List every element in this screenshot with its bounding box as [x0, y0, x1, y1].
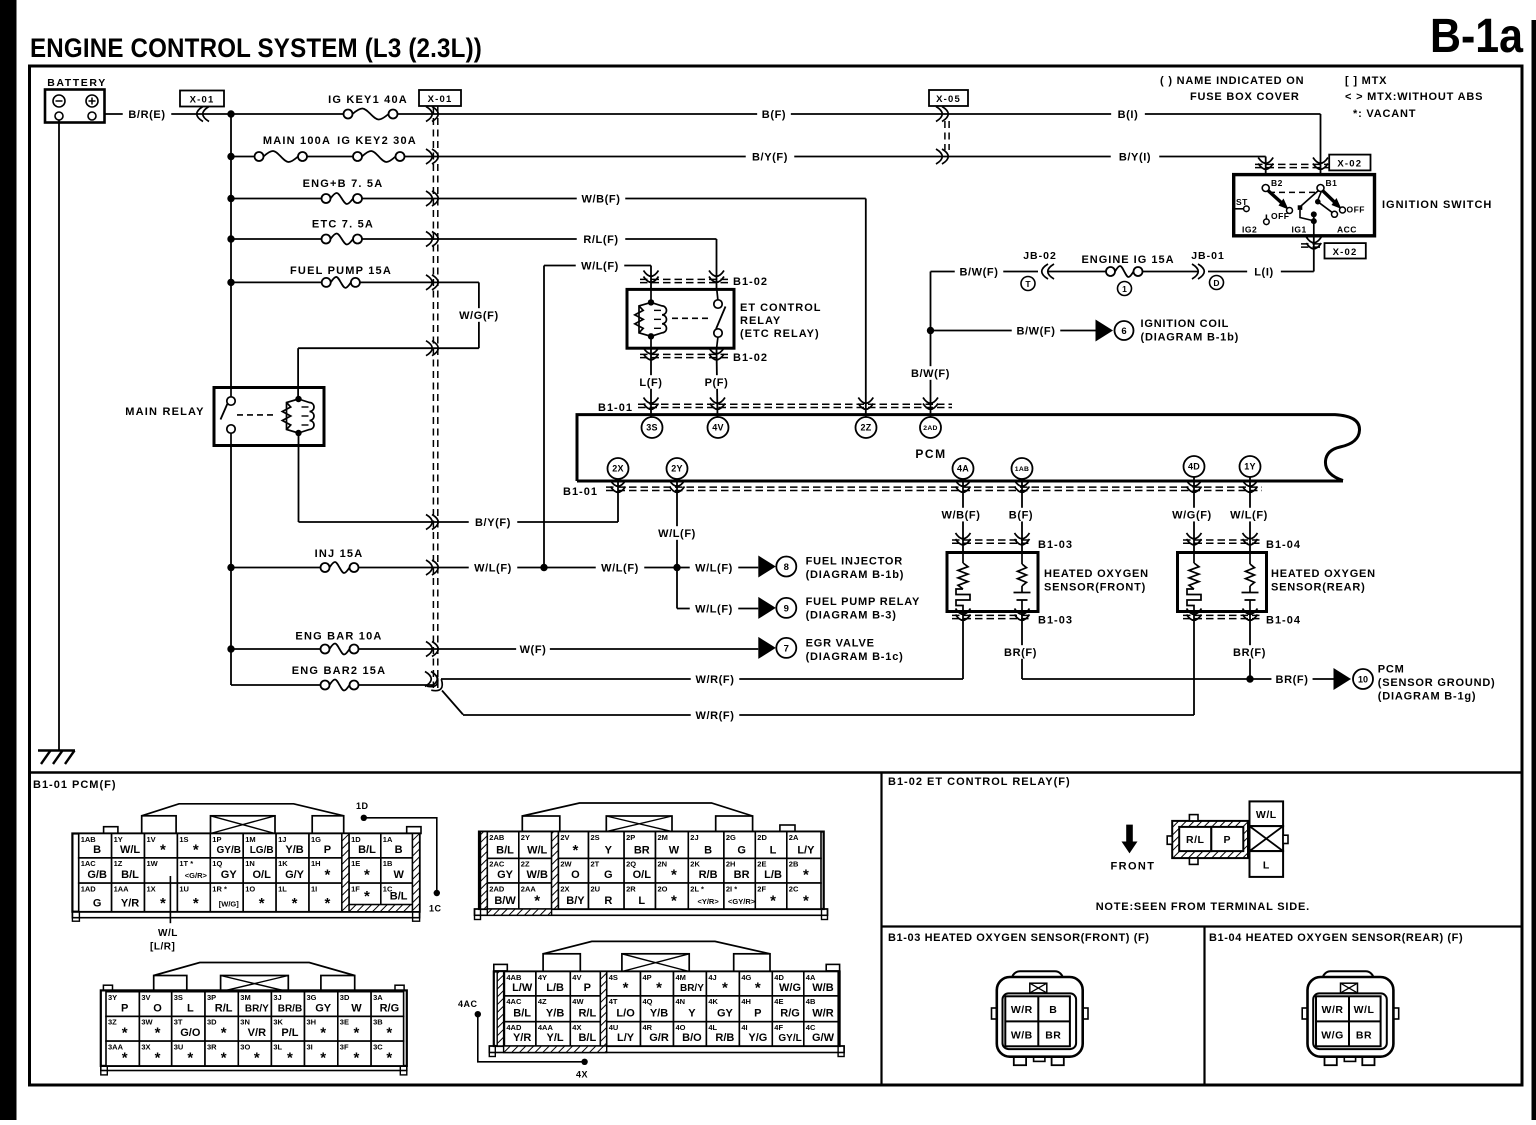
svg-text:W/R: W/R	[1322, 1004, 1344, 1016]
svg-text:IG2: IG2	[1242, 225, 1257, 235]
svg-text:1A: 1A	[383, 835, 393, 844]
svg-text:W/L(F): W/L(F)	[474, 562, 512, 574]
svg-text:3M: 3M	[240, 993, 250, 1002]
svg-text:B: B	[704, 844, 712, 856]
svg-text:4Z: 4Z	[538, 997, 547, 1006]
svg-text:4AC: 4AC	[458, 999, 478, 1009]
svg-text:4V: 4V	[572, 973, 581, 982]
svg-text:L: L	[187, 1002, 194, 1014]
svg-text:2F: 2F	[757, 884, 766, 893]
svg-text:X-02: X-02	[1333, 247, 1358, 258]
svg-text:W/B(F): W/B(F)	[941, 510, 980, 522]
svg-text:R/B: R/B	[699, 869, 718, 881]
svg-text:3D: 3D	[207, 1018, 217, 1027]
svg-text:B/W(F): B/W(F)	[1016, 325, 1055, 337]
svg-text:*: *	[221, 1049, 227, 1066]
svg-text:W/R: W/R	[812, 1008, 833, 1020]
svg-text:X-02: X-02	[1337, 159, 1362, 170]
svg-text:B/O: B/O	[682, 1032, 702, 1044]
svg-text:IG KEY2 30A: IG KEY2 30A	[337, 135, 417, 147]
svg-text:*: *	[160, 895, 166, 912]
svg-text:BR(F): BR(F)	[1004, 647, 1037, 659]
svg-text:2Q: 2Q	[626, 860, 636, 869]
svg-text:1H: 1H	[311, 859, 321, 868]
svg-text:X-01: X-01	[190, 95, 215, 106]
svg-text:PCM: PCM	[915, 447, 946, 461]
svg-text:Y/L: Y/L	[547, 1032, 564, 1044]
svg-text:W: W	[351, 1002, 362, 1014]
svg-text:W/R: W/R	[1011, 1004, 1033, 1016]
svg-text:1AC: 1AC	[81, 859, 97, 868]
svg-text:( ) NAME INDICATED ON: ( ) NAME INDICATED ON	[1160, 75, 1304, 87]
svg-text:V/R: V/R	[248, 1027, 266, 1039]
svg-text:2P: 2P	[626, 833, 635, 842]
svg-text:SENSOR(FRONT): SENSOR(FRONT)	[1044, 582, 1146, 594]
svg-text:2X: 2X	[560, 884, 569, 893]
svg-text:2K: 2K	[690, 860, 700, 869]
svg-text:P: P	[584, 982, 591, 994]
svg-text:B1-01 PCM(F): B1-01 PCM(F)	[33, 779, 117, 791]
svg-text:1D: 1D	[351, 835, 361, 844]
svg-text:*: *	[386, 1049, 392, 1066]
svg-text:B/L: B/L	[496, 844, 514, 856]
svg-text:3K: 3K	[273, 1018, 283, 1027]
svg-text:*: VACANT: *: VACANT	[1353, 108, 1416, 120]
svg-text:3S: 3S	[646, 423, 658, 433]
svg-text:X-01: X-01	[428, 94, 453, 105]
svg-text:4K: 4K	[708, 997, 718, 1006]
svg-text:1E: 1E	[351, 859, 360, 868]
svg-text:2I *: 2I *	[726, 884, 737, 893]
svg-text:GY: GY	[717, 1008, 734, 1020]
svg-text:L/Y: L/Y	[617, 1032, 635, 1044]
svg-text:4X: 4X	[572, 1023, 581, 1032]
svg-text:JB-02: JB-02	[1023, 250, 1057, 262]
svg-text:R/G: R/G	[380, 1002, 400, 1014]
svg-text:X-05: X-05	[936, 94, 961, 105]
svg-text:2J: 2J	[690, 833, 698, 842]
svg-text:2Z: 2Z	[521, 860, 530, 869]
svg-text:G/B: G/B	[87, 869, 107, 881]
svg-text:BR(F): BR(F)	[1276, 674, 1309, 686]
svg-text:W/G(F): W/G(F)	[459, 310, 499, 322]
svg-text:2V: 2V	[560, 833, 569, 842]
svg-text:L/Y: L/Y	[797, 844, 815, 856]
svg-text:L/W: L/W	[512, 982, 533, 994]
svg-text:B2: B2	[1271, 178, 1283, 188]
svg-text:<Y/R>: <Y/R>	[697, 897, 719, 906]
svg-text:BR(F): BR(F)	[1233, 647, 1266, 659]
svg-text:W/L: W/L	[1256, 809, 1277, 821]
svg-text:PCM: PCM	[1378, 664, 1405, 676]
svg-text:2G: 2G	[726, 833, 736, 842]
svg-text:4F: 4F	[774, 1023, 783, 1032]
svg-text:1D: 1D	[356, 801, 369, 811]
svg-text:2O: 2O	[658, 884, 668, 893]
svg-text:HEATED OXYGEN: HEATED OXYGEN	[1044, 568, 1149, 580]
svg-text:BR/Y: BR/Y	[680, 983, 704, 994]
svg-text:2N: 2N	[658, 860, 668, 869]
svg-text:BR: BR	[734, 869, 750, 881]
svg-text:3C: 3C	[373, 1042, 383, 1051]
svg-text:*: *	[287, 1049, 293, 1066]
svg-text:*: *	[671, 867, 677, 884]
svg-text:B1-04: B1-04	[1266, 615, 1301, 627]
svg-text:B: B	[93, 844, 101, 856]
svg-text:W/G: W/G	[1321, 1029, 1344, 1041]
svg-text:W/B: W/B	[527, 869, 548, 881]
svg-text:BR: BR	[1356, 1029, 1372, 1041]
svg-text:O/L: O/L	[252, 869, 271, 881]
svg-text:[L/R]: [L/R]	[150, 942, 175, 953]
svg-text:*: *	[386, 1025, 392, 1042]
svg-text:*: *	[354, 1025, 360, 1042]
svg-text:(DIAGRAM B-1g): (DIAGRAM B-1g)	[1378, 691, 1477, 703]
svg-text:1U: 1U	[179, 884, 189, 893]
svg-text:*: *	[160, 841, 166, 858]
svg-text:1F: 1F	[351, 884, 360, 893]
svg-text:W/B: W/B	[812, 982, 833, 994]
svg-text:B/W: B/W	[494, 895, 516, 907]
svg-text:B/Y: B/Y	[566, 895, 585, 907]
svg-text:ENG BAR 10A: ENG BAR 10A	[295, 631, 382, 643]
svg-text:<G/R>: <G/R>	[185, 871, 208, 880]
svg-text:GY: GY	[497, 869, 514, 881]
svg-text:O: O	[153, 1002, 162, 1014]
svg-text:R/G: R/G	[780, 1008, 800, 1020]
svg-text:*: *	[364, 888, 370, 905]
svg-text:B/L: B/L	[358, 844, 376, 856]
svg-text:4X: 4X	[576, 1070, 588, 1080]
svg-text:G/W: G/W	[812, 1032, 835, 1044]
svg-text:4C: 4C	[806, 1023, 816, 1032]
svg-text:BATTERY: BATTERY	[47, 77, 107, 89]
svg-text:1AB: 1AB	[81, 835, 97, 844]
svg-text:BR: BR	[1045, 1029, 1061, 1041]
svg-text:Y/G: Y/G	[748, 1032, 767, 1044]
svg-text:1Z: 1Z	[114, 859, 123, 868]
svg-text:B/Y(I): B/Y(I)	[1119, 151, 1151, 163]
svg-text:ST: ST	[1236, 197, 1248, 207]
svg-text:1R *: 1R *	[212, 884, 227, 893]
svg-text:*: *	[320, 1025, 326, 1042]
svg-text:*: *	[671, 893, 677, 910]
svg-text:(SENSOR GROUND): (SENSOR GROUND)	[1378, 677, 1496, 689]
svg-text:LG/B: LG/B	[250, 845, 274, 856]
svg-text:W/L: W/L	[527, 844, 547, 856]
svg-text:7: 7	[784, 643, 789, 654]
svg-text:4T: 4T	[609, 997, 618, 1006]
svg-text:IGNITION COIL: IGNITION COIL	[1141, 318, 1230, 330]
svg-text:4AA: 4AA	[538, 1023, 554, 1032]
svg-text:W/L(F): W/L(F)	[1230, 510, 1268, 522]
svg-text:B/L: B/L	[513, 1008, 531, 1020]
svg-text:1X: 1X	[147, 884, 156, 893]
svg-text:1T *: 1T *	[179, 859, 193, 868]
svg-text:2R: 2R	[626, 884, 636, 893]
svg-text:P/L: P/L	[281, 1027, 298, 1039]
svg-text:*: *	[325, 895, 331, 912]
svg-text:*: *	[221, 1025, 227, 1042]
svg-text:3L: 3L	[273, 1042, 282, 1051]
svg-text:4H: 4H	[741, 997, 751, 1006]
svg-text:1AD: 1AD	[81, 884, 97, 893]
svg-text:3E: 3E	[340, 1018, 349, 1027]
svg-text:1M: 1M	[245, 835, 255, 844]
svg-text:B/Y(F): B/Y(F)	[475, 517, 511, 529]
svg-text:W/G(F): W/G(F)	[1172, 510, 1212, 522]
svg-text:*: *	[354, 1049, 360, 1066]
svg-text:2E: 2E	[757, 860, 766, 869]
svg-text:W/L(F): W/L(F)	[601, 562, 639, 574]
svg-text:*: *	[722, 979, 728, 996]
svg-text:*: *	[122, 1049, 128, 1066]
svg-text:2C: 2C	[789, 884, 799, 893]
svg-text:8: 8	[784, 562, 789, 573]
svg-text:2AD: 2AD	[489, 884, 505, 893]
svg-text:OFF: OFF	[1347, 205, 1366, 215]
svg-text:4Q: 4Q	[643, 997, 653, 1006]
svg-text:4W: 4W	[572, 997, 584, 1006]
svg-text:G: G	[604, 869, 613, 881]
svg-text:3H: 3H	[307, 1018, 317, 1027]
svg-text:W/L: W/L	[1354, 1004, 1375, 1016]
svg-text:4D: 4D	[774, 973, 784, 982]
svg-text:SENSOR(REAR): SENSOR(REAR)	[1271, 582, 1366, 594]
svg-text:B1-03: B1-03	[1038, 539, 1073, 551]
svg-text:1L: 1L	[278, 884, 287, 893]
svg-text:4M: 4M	[676, 973, 686, 982]
svg-text:4R: 4R	[643, 1023, 653, 1032]
svg-text:*: *	[364, 867, 370, 884]
svg-text:*: *	[193, 841, 199, 858]
svg-text:W/L(F): W/L(F)	[695, 562, 733, 574]
svg-text:*: *	[755, 979, 761, 996]
svg-text:(ETC RELAY): (ETC RELAY)	[740, 328, 820, 340]
svg-text:2Y: 2Y	[521, 833, 530, 842]
svg-text:IGNITION SWITCH: IGNITION SWITCH	[1382, 199, 1492, 211]
svg-text:3Y: 3Y	[108, 993, 117, 1002]
svg-text:*: *	[573, 842, 579, 859]
svg-text:G: G	[93, 898, 102, 910]
svg-text:3F: 3F	[340, 1042, 349, 1051]
svg-text:B(I): B(I)	[1118, 109, 1139, 121]
svg-text:P(F): P(F)	[705, 377, 729, 389]
svg-text:3R: 3R	[207, 1042, 217, 1051]
svg-text:B1-03 HEATED OXYGEN SENSOR(FRO: B1-03 HEATED OXYGEN SENSOR(FRONT) (F)	[888, 932, 1150, 944]
svg-text:G: G	[737, 844, 746, 856]
svg-text:(DIAGRAM B-1b): (DIAGRAM B-1b)	[806, 569, 905, 581]
svg-text:Y/R: Y/R	[513, 1032, 531, 1044]
svg-text:B1-03: B1-03	[1038, 615, 1073, 627]
svg-text:*: *	[292, 895, 298, 912]
svg-text:MAIN RELAY: MAIN RELAY	[125, 406, 204, 418]
svg-text:1B: 1B	[383, 859, 393, 868]
svg-text:4I: 4I	[741, 1023, 747, 1032]
svg-text:B1-02 ET CONTROL RELAY(F): B1-02 ET CONTROL RELAY(F)	[888, 776, 1071, 788]
svg-text:4O: 4O	[676, 1023, 686, 1032]
svg-text:3N: 3N	[240, 1018, 250, 1027]
svg-text:B(F): B(F)	[1009, 510, 1033, 522]
svg-text:4B: 4B	[806, 997, 816, 1006]
svg-text:3V: 3V	[141, 993, 150, 1002]
svg-text:G/Y: G/Y	[285, 869, 305, 881]
svg-text:4E: 4E	[774, 997, 783, 1006]
svg-text:Y: Y	[605, 844, 613, 856]
svg-text:Y/R: Y/R	[121, 898, 139, 910]
svg-text:R/B: R/B	[715, 1032, 734, 1044]
svg-text:*: *	[320, 1049, 326, 1066]
svg-text:1Q: 1Q	[212, 859, 222, 868]
svg-text:OFF: OFF	[1271, 211, 1290, 221]
svg-text:B1-04: B1-04	[1266, 539, 1301, 551]
svg-text:T: T	[1025, 279, 1031, 289]
svg-text:*: *	[193, 895, 199, 912]
svg-text:4Y: 4Y	[538, 973, 547, 982]
svg-text:W/R(F): W/R(F)	[695, 674, 734, 686]
svg-text:2Z: 2Z	[860, 423, 871, 433]
svg-text:L(I): L(I)	[1254, 266, 1274, 278]
svg-text:1P: 1P	[212, 835, 221, 844]
svg-text:*: *	[623, 979, 629, 996]
svg-text:L: L	[638, 895, 645, 907]
svg-text:2T: 2T	[591, 860, 600, 869]
svg-text:R/L: R/L	[578, 1008, 596, 1020]
svg-text:1Y: 1Y	[1244, 462, 1256, 472]
svg-text:FUEL PUMP 15A: FUEL PUMP 15A	[290, 265, 392, 277]
svg-text:2AC: 2AC	[489, 860, 505, 869]
svg-text:*: *	[187, 1049, 193, 1066]
svg-text:O/L: O/L	[633, 869, 652, 881]
svg-text:ET CONTROL: ET CONTROL	[740, 302, 822, 314]
svg-text:W/L(F): W/L(F)	[658, 528, 696, 540]
svg-text:GY: GY	[221, 869, 238, 881]
svg-text:W/R(F): W/R(F)	[695, 710, 734, 722]
svg-text:4G: 4G	[741, 973, 751, 982]
svg-text:<GY/R>: <GY/R>	[728, 897, 756, 906]
svg-text:ENG+B 7. 5A: ENG+B 7. 5A	[303, 178, 384, 190]
svg-text:*: *	[325, 867, 331, 884]
svg-text:FRONT: FRONT	[1111, 861, 1156, 873]
svg-text:3G: 3G	[307, 993, 317, 1002]
svg-text:INJ 15A: INJ 15A	[315, 548, 364, 560]
svg-text:B1: B1	[1326, 178, 1338, 188]
svg-text:GY: GY	[315, 1002, 332, 1014]
svg-text:R: R	[604, 895, 612, 907]
svg-text:(DIAGRAM B-1c): (DIAGRAM B-1c)	[806, 651, 904, 663]
svg-text:L/B: L/B	[546, 982, 564, 994]
svg-text:2W: 2W	[560, 860, 572, 869]
svg-text:P: P	[754, 1008, 761, 1020]
svg-text:Y/B: Y/B	[650, 1008, 668, 1020]
svg-text:D: D	[1213, 278, 1219, 288]
svg-text:1G: 1G	[311, 835, 321, 844]
svg-text:1C: 1C	[429, 904, 442, 914]
svg-text:B: B	[1049, 1004, 1057, 1016]
svg-text:W(F): W(F)	[520, 644, 547, 656]
svg-text:FUEL PUMP RELAY: FUEL PUMP RELAY	[806, 596, 921, 608]
svg-text:BR/B: BR/B	[278, 1003, 302, 1014]
svg-text:4J: 4J	[708, 973, 716, 982]
svg-text:P: P	[121, 1002, 128, 1014]
svg-text:1: 1	[1122, 284, 1127, 294]
svg-text:W/L(F): W/L(F)	[695, 603, 733, 615]
svg-text:4A: 4A	[957, 464, 969, 474]
svg-text:3X: 3X	[141, 1042, 150, 1051]
svg-text:W/G: W/G	[779, 982, 801, 994]
svg-text:1AA: 1AA	[114, 884, 130, 893]
svg-text:L/B: L/B	[764, 869, 782, 881]
svg-text:*: *	[656, 979, 662, 996]
svg-text:L: L	[1263, 860, 1270, 872]
svg-text:B/R(E): B/R(E)	[128, 109, 165, 121]
svg-text:4D: 4D	[1188, 462, 1200, 472]
svg-text:R/L(F): R/L(F)	[583, 234, 618, 246]
svg-text:2S: 2S	[591, 833, 600, 842]
svg-text:3B: 3B	[373, 1018, 383, 1027]
svg-text:1J: 1J	[278, 835, 286, 844]
svg-text:4AC: 4AC	[506, 997, 522, 1006]
svg-text:BR/Y: BR/Y	[245, 1003, 269, 1014]
svg-text:*: *	[122, 1025, 128, 1042]
svg-text:3O: 3O	[240, 1042, 250, 1051]
svg-text:P: P	[1224, 834, 1232, 846]
svg-text:GY/L: GY/L	[778, 1033, 801, 1044]
svg-text:Y/B: Y/B	[546, 1008, 564, 1020]
svg-text:IG KEY1 40A: IG KEY1 40A	[328, 94, 408, 106]
svg-text:2M: 2M	[658, 833, 668, 842]
svg-text:W/L(F): W/L(F)	[581, 260, 619, 272]
svg-text:B/Y(F): B/Y(F)	[752, 151, 788, 163]
svg-text:2AB: 2AB	[489, 833, 505, 842]
svg-text:B-1a: B-1a	[1430, 10, 1523, 63]
svg-text:L/O: L/O	[616, 1008, 635, 1020]
svg-text:4AD: 4AD	[506, 1023, 522, 1032]
svg-text:3D: 3D	[340, 993, 350, 1002]
svg-text:1N: 1N	[245, 859, 255, 868]
svg-text:1V: 1V	[147, 835, 156, 844]
svg-text:4U: 4U	[609, 1023, 619, 1032]
svg-text:Y/B: Y/B	[285, 844, 303, 856]
svg-text:2L *: 2L *	[690, 884, 704, 893]
svg-text:3I: 3I	[307, 1042, 313, 1051]
svg-text:2Y: 2Y	[671, 464, 683, 474]
svg-text:[W/G]: [W/G]	[219, 900, 239, 909]
svg-text:*: *	[254, 1049, 260, 1066]
svg-text:< > MTX:WITHOUT ABS: < > MTX:WITHOUT ABS	[1345, 91, 1483, 103]
svg-text:4AB: 4AB	[506, 973, 522, 982]
svg-text:*: *	[259, 895, 265, 912]
svg-text:JB-01: JB-01	[1191, 250, 1225, 262]
svg-text:2X: 2X	[612, 464, 624, 474]
svg-text:1W: 1W	[147, 859, 159, 868]
svg-text:ETC 7. 5A: ETC 7. 5A	[312, 219, 374, 231]
svg-text:B1-02: B1-02	[733, 352, 768, 364]
svg-text:*: *	[155, 1049, 161, 1066]
svg-text:B1-04 HEATED OXYGEN SENSOR(REA: B1-04 HEATED OXYGEN SENSOR(REAR) (F)	[1209, 932, 1463, 944]
svg-text:1S: 1S	[179, 835, 188, 844]
svg-text:(DIAGRAM B-1b): (DIAGRAM B-1b)	[1141, 332, 1240, 344]
svg-text:R/L: R/L	[1186, 834, 1205, 846]
svg-text:O: O	[571, 869, 580, 881]
svg-text:*: *	[770, 893, 776, 910]
svg-text:G/R: G/R	[649, 1032, 669, 1044]
svg-text:ENG BAR2 15A: ENG BAR2 15A	[292, 665, 386, 677]
svg-text:B: B	[395, 844, 403, 856]
svg-text:B1-02: B1-02	[733, 276, 768, 288]
svg-text:4L: 4L	[708, 1023, 717, 1032]
svg-text:G/O: G/O	[180, 1027, 201, 1039]
